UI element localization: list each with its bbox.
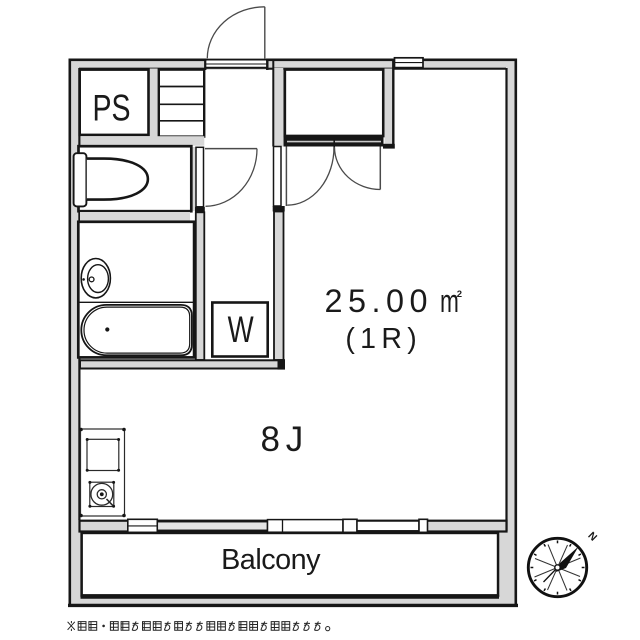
svg-text:W: W [228,309,254,350]
svg-text:2: 2 [457,289,462,300]
svg-text:(1R): (1R) [345,323,422,355]
svg-text:8: 8 [261,420,280,459]
svg-text:Balcony: Balcony [221,544,321,576]
svg-text:PS: PS [92,87,130,128]
svg-text:J: J [286,420,304,459]
svg-text:25.00: 25.00 [325,283,434,319]
